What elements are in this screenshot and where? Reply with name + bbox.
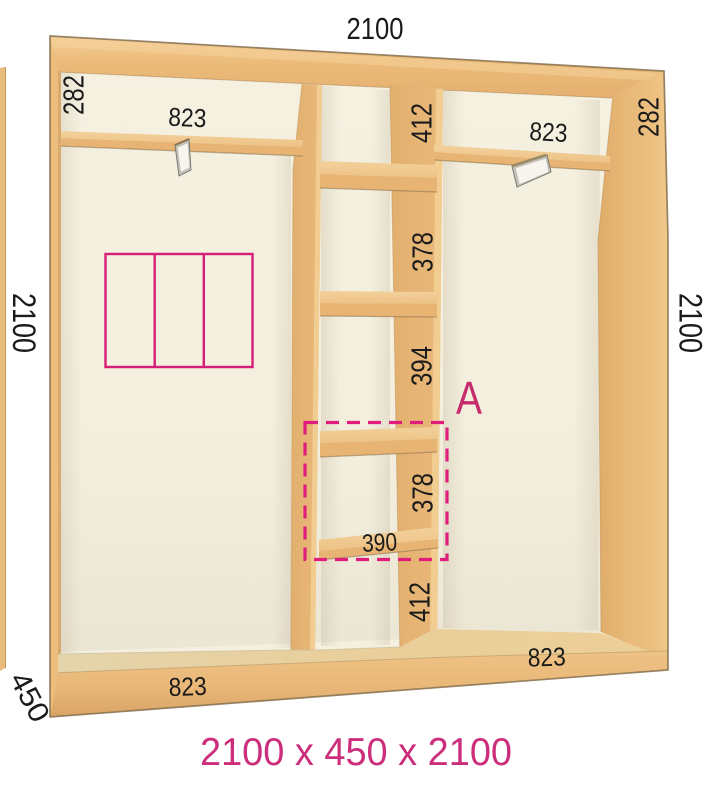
svg-text:2100: 2100 [6, 293, 42, 353]
svg-text:823: 823 [529, 116, 569, 148]
svg-text:A: A [456, 372, 482, 424]
svg-text:412: 412 [407, 103, 439, 143]
svg-text:282: 282 [59, 75, 91, 115]
svg-text:2100: 2100 [347, 11, 404, 46]
svg-text:394: 394 [407, 346, 439, 386]
svg-text:282: 282 [634, 97, 666, 137]
svg-text:378: 378 [408, 473, 440, 513]
svg-text:378: 378 [408, 232, 440, 272]
svg-text:2100: 2100 [673, 293, 709, 353]
svg-text:390: 390 [361, 528, 397, 558]
svg-text:823: 823 [168, 671, 207, 702]
svg-text:823: 823 [527, 641, 566, 672]
svg-text:823: 823 [168, 102, 207, 134]
svg-text:412: 412 [405, 582, 437, 622]
svg-text:2100 x 450 x 2100: 2100 x 450 x 2100 [200, 731, 512, 774]
